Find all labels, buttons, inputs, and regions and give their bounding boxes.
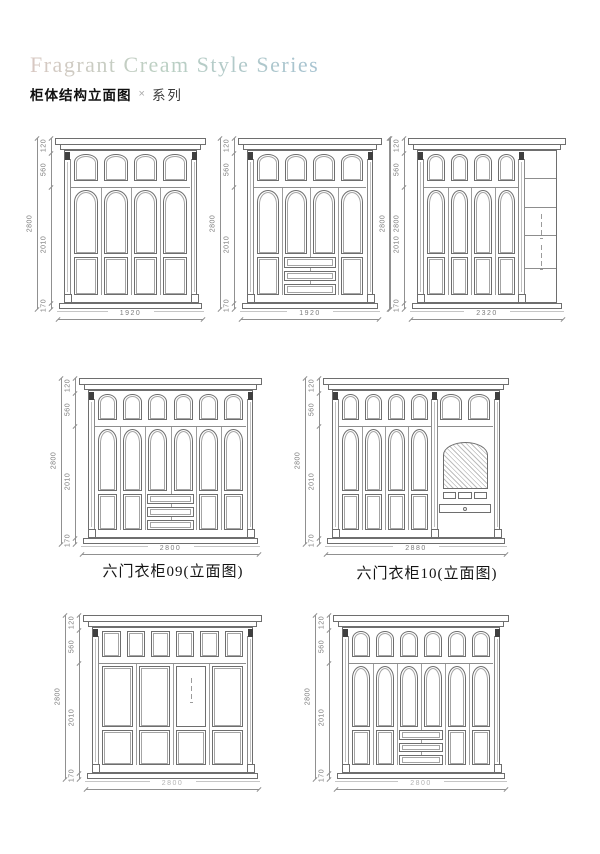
- door-panel-inner: [214, 732, 241, 764]
- caption-wardrobe-10: 六门衣柜10(立面图): [312, 562, 542, 583]
- door-panel-inner: [100, 496, 115, 529]
- door-panel-inner: [450, 633, 464, 656]
- dim-label: 2010: [318, 703, 327, 733]
- dim-label: 170: [68, 761, 77, 791]
- door-gap-line: [373, 664, 374, 765]
- pilaster-edge: [367, 159, 368, 295]
- tiny-annotation: [540, 238, 543, 239]
- pilaster-capital: [432, 392, 437, 400]
- mirror-base-panel: [474, 492, 488, 499]
- pilaster-foot: [367, 294, 375, 303]
- shelf-line: [524, 235, 556, 236]
- door-panel-inner: [176, 431, 191, 490]
- pilaster-foot: [332, 529, 340, 538]
- dim-tick: [504, 552, 509, 557]
- door-panel-inner: [106, 192, 126, 253]
- pilaster-edge: [423, 159, 424, 295]
- door-gap-line: [173, 664, 174, 765]
- door-panel-inner: [453, 192, 467, 253]
- pilaster-flute: [194, 162, 195, 292]
- door-panel-inner: [165, 192, 185, 253]
- pilaster-edge: [494, 636, 495, 765]
- door-panel-inner: [287, 192, 305, 253]
- pilaster-capital: [89, 392, 94, 400]
- dim-line-width: [86, 789, 259, 790]
- door-panel-inner: [178, 633, 193, 656]
- dim-label: 2010: [223, 230, 232, 260]
- pilaster-foot: [247, 294, 255, 303]
- pilaster-foot: [64, 294, 72, 303]
- pilaster-flute: [67, 162, 68, 292]
- drawer-front-inner: [287, 286, 333, 293]
- elevation-6door-wardrobe-10: 120560201017028002880: [296, 376, 540, 580]
- dim-label-width: 1920: [108, 310, 154, 318]
- door-panel-inner: [136, 259, 156, 294]
- dim-label: 170: [393, 291, 402, 321]
- door-panel-inner: [476, 156, 490, 180]
- door-panel-inner: [413, 496, 426, 529]
- door-panel-inner: [76, 259, 96, 294]
- dim-label: 170: [223, 291, 232, 321]
- door-panel-inner: [176, 396, 191, 419]
- door-gap-line: [397, 664, 398, 765]
- pilaster-foot: [494, 529, 502, 538]
- door-panel-inner: [125, 396, 140, 419]
- page-title: Fragrant Cream Style Series: [30, 52, 319, 78]
- door-gap-line: [282, 188, 283, 295]
- door-panel-inner: [500, 192, 514, 253]
- door-panel-inner: [202, 633, 217, 656]
- door-panel-inner: [100, 396, 115, 419]
- dim-line: [404, 138, 405, 309]
- pilaster-flute: [434, 402, 435, 527]
- door-gap-line: [338, 188, 339, 295]
- door-panel-inner: [125, 496, 140, 529]
- dim-line-total: [61, 378, 62, 544]
- pilaster-capital: [495, 392, 500, 400]
- dim-line-width: [58, 319, 203, 320]
- pilaster-capital: [248, 392, 253, 400]
- dim-line: [75, 378, 76, 544]
- pilaster-flute: [521, 162, 522, 292]
- pilaster-foot: [431, 529, 439, 538]
- door-panel-inner: [390, 431, 403, 490]
- drawer-knob: [463, 507, 467, 511]
- door-panel-inner: [453, 259, 467, 294]
- door-panel-inner: [259, 259, 277, 294]
- pilaster-edge: [98, 636, 99, 765]
- door-panel-inner: [106, 156, 126, 180]
- pilaster-flute: [250, 402, 251, 527]
- base-plinth: [327, 538, 505, 544]
- pilaster-flute: [345, 639, 346, 762]
- pilaster-capital: [333, 392, 338, 400]
- dim-label: 2800: [26, 208, 35, 238]
- door-panel-inner: [227, 633, 242, 656]
- caption-wardrobe-09: 六门衣柜09(立面图): [58, 560, 288, 581]
- door-panel-inner: [165, 259, 185, 294]
- drawer-front-inner: [402, 757, 440, 763]
- dim-line-total: [37, 138, 38, 309]
- door-panel-inner: [474, 732, 488, 764]
- door-panel-inner: [402, 633, 416, 656]
- dim-tick: [49, 307, 54, 312]
- mirror-base-panel: [443, 492, 457, 499]
- top-divider-line: [437, 426, 493, 427]
- pilaster-edge: [494, 399, 495, 530]
- tiny-annotation: [191, 686, 192, 691]
- dim-label-width: 2320: [464, 310, 510, 318]
- door-panel-inner: [104, 668, 131, 726]
- door-panel-inner: [226, 496, 241, 529]
- tiny-annotation: [540, 269, 543, 270]
- dim-label: 170: [64, 526, 73, 556]
- mirror-base-panel: [458, 492, 472, 499]
- dim-line-total: [220, 138, 221, 309]
- dim-label: 560: [68, 631, 77, 661]
- dim-label: 560: [318, 631, 327, 661]
- door-gap-line: [221, 427, 222, 530]
- door-panel-inner: [367, 431, 380, 490]
- dim-line: [234, 138, 235, 309]
- door-gap-line: [469, 664, 470, 765]
- tiny-annotation: [541, 261, 542, 266]
- door-panel-inner: [141, 732, 168, 764]
- door-panel-inner: [450, 668, 464, 726]
- door-panel-inner: [178, 732, 205, 764]
- door-panel-inner: [315, 156, 333, 180]
- door-panel-inner: [429, 156, 443, 180]
- base-plinth: [87, 773, 258, 779]
- pilaster-edge: [338, 399, 339, 530]
- dim-label: 2800: [379, 208, 388, 238]
- dim-label-width: 2880: [393, 545, 439, 553]
- dim-label-width: 2800: [398, 780, 444, 788]
- pilaster-flute: [91, 402, 92, 527]
- shelf-line: [524, 207, 556, 208]
- door-gap-line: [145, 427, 146, 530]
- door-panel-inner: [259, 192, 277, 253]
- pilaster-flute: [335, 402, 336, 527]
- subtitle-main: 柜体结构立面图: [30, 84, 132, 104]
- tiny-annotation: [191, 678, 192, 683]
- dim-line-total: [65, 615, 66, 779]
- mirror: [443, 442, 488, 489]
- door-panel-inner: [106, 259, 126, 294]
- pilaster-capital: [519, 152, 524, 160]
- dim-line-width: [411, 319, 563, 320]
- drawer-front-inner: [287, 259, 333, 266]
- multiply-separator: ×: [139, 88, 145, 100]
- drawer-front-inner: [402, 732, 440, 738]
- door-panel-inner: [453, 156, 467, 180]
- dim-label: 560: [393, 155, 402, 185]
- door-panel-inner: [378, 668, 392, 726]
- door-panel-inner: [343, 192, 361, 253]
- door-gap-line: [445, 664, 446, 765]
- drawer-front-inner: [287, 273, 333, 280]
- pilaster-capital: [368, 152, 373, 160]
- elevation-4door-wardrobe-a: 120560201017028001920: [28, 136, 237, 345]
- door-gap-line: [196, 427, 197, 530]
- dim-tick: [327, 777, 332, 782]
- door-gap-line: [131, 188, 132, 295]
- dim-tick: [561, 317, 566, 322]
- pilaster-flute: [250, 162, 251, 292]
- door-panel-inner: [474, 633, 488, 656]
- door-panel-inner: [226, 431, 241, 490]
- pilaster-capital: [248, 629, 253, 637]
- dim-label-width: 2800: [150, 780, 196, 788]
- dim-line-width: [241, 319, 379, 320]
- door-panel-inner: [474, 668, 488, 726]
- dim-tick: [77, 777, 82, 782]
- dim-tick: [317, 542, 322, 547]
- pilaster-edge: [524, 159, 525, 295]
- door-panel-inner: [136, 156, 156, 180]
- pilaster-capital: [495, 629, 500, 637]
- door-panel-inner: [141, 668, 168, 726]
- tiny-annotation: [541, 253, 542, 258]
- pilaster-foot: [518, 294, 526, 303]
- pilaster-foot: [247, 529, 255, 538]
- door-panel-inner: [344, 396, 357, 419]
- pilaster-flute: [497, 639, 498, 762]
- door-gap-line: [385, 427, 386, 530]
- door-gap-line: [209, 664, 210, 765]
- dim-label: 2800: [209, 208, 218, 238]
- pilaster-foot: [92, 764, 100, 773]
- door-gap-line: [136, 664, 137, 765]
- elevation-6door-wardrobe-drawers: 120560201017028002800: [306, 613, 540, 815]
- dim-label: 170: [318, 761, 327, 791]
- door-panel-inner: [367, 396, 380, 419]
- door-panel-inner: [259, 156, 277, 180]
- door-panel-inner: [201, 396, 216, 419]
- pilaster-foot: [191, 294, 199, 303]
- door-panel-inner: [226, 396, 241, 419]
- pilaster-edge: [191, 159, 192, 295]
- dim-line-total: [315, 615, 316, 779]
- base-plinth: [337, 773, 505, 779]
- dim-label: 170: [308, 526, 317, 556]
- door-panel-inner: [378, 732, 392, 764]
- door-panel-inner: [429, 192, 443, 253]
- pilaster-flute: [95, 639, 96, 762]
- dim-tick: [257, 787, 262, 792]
- door-panel-inner: [76, 192, 96, 253]
- base-plinth: [59, 303, 202, 309]
- door-gap-line: [495, 188, 496, 295]
- pilaster-edge: [253, 159, 254, 295]
- door-panel-inner: [201, 431, 216, 490]
- door-panel-inner: [104, 732, 131, 764]
- elevation-6door-wardrobe-flat: 120560201017028002800: [56, 613, 293, 815]
- pilaster-flute: [497, 402, 498, 527]
- door-panel-inner: [426, 668, 440, 726]
- base-plinth: [412, 303, 562, 309]
- door-panel-inner: [450, 732, 464, 764]
- pilaster-edge: [94, 399, 95, 530]
- door-panel-inner: [76, 156, 96, 180]
- drawer-front-inner: [402, 745, 440, 751]
- pilaster-capital: [248, 152, 253, 160]
- pilaster-foot: [247, 764, 255, 773]
- drawer-front-inner: [150, 522, 190, 528]
- dim-tick: [402, 307, 407, 312]
- door-panel-inner: [402, 668, 416, 726]
- pilaster-edge: [348, 636, 349, 765]
- pilaster-capital: [65, 152, 70, 160]
- dim-label: 2800: [50, 446, 59, 476]
- pilaster-capital: [93, 629, 98, 637]
- base-plinth: [242, 303, 378, 309]
- dim-label: 2010: [393, 230, 402, 260]
- door-panel-inner: [476, 259, 490, 294]
- dim-label: 2010: [308, 467, 317, 497]
- tiny-annotation: [541, 245, 542, 250]
- dim-label-width: 1920: [287, 310, 333, 318]
- door-panel-inner: [378, 633, 392, 656]
- door-panel-inner: [343, 259, 361, 294]
- dim-label: 560: [64, 394, 73, 424]
- door-panel-inner: [442, 396, 460, 419]
- dim-label: 2800: [294, 446, 303, 476]
- door-panel-inner: [344, 496, 357, 529]
- dim-line-width: [336, 789, 506, 790]
- dim-label: 2800: [54, 682, 63, 712]
- dim-line: [319, 378, 320, 544]
- subtitle-series: 系列: [152, 84, 183, 104]
- door-panel-inner: [104, 633, 119, 656]
- door-panel-inner: [150, 431, 165, 490]
- door-gap-line: [160, 188, 161, 295]
- door-gap-line: [101, 188, 102, 295]
- dim-line-width: [82, 554, 259, 555]
- dim-label: 2010: [68, 703, 77, 733]
- door-panel-inner: [470, 396, 488, 419]
- tiny-annotation: [541, 230, 542, 235]
- base-plinth: [83, 538, 258, 544]
- door-panel-inner: [500, 259, 514, 294]
- door-panel-inner: [136, 192, 156, 253]
- door-panel-inner: [100, 431, 115, 490]
- tiny-annotation: [541, 222, 542, 227]
- dim-tick: [257, 552, 262, 557]
- catalog-page: Fragrant Cream Style Series 柜体结构立面图 × 系列…: [0, 0, 600, 854]
- pilaster-edge: [70, 159, 71, 295]
- door-panel-inner: [390, 496, 403, 529]
- drawer-front-inner: [150, 496, 190, 502]
- dim-label: 560: [40, 155, 49, 185]
- dim-label: 2010: [64, 467, 73, 497]
- door-panel-inner: [150, 396, 165, 419]
- tiny-annotation: [190, 702, 193, 703]
- dim-label-width: 2800: [148, 545, 194, 553]
- pilaster-flute: [420, 162, 421, 292]
- pilaster-edge: [437, 399, 438, 530]
- door-panel-inner: [354, 633, 368, 656]
- dim-line: [329, 615, 330, 779]
- pilaster-capital: [418, 152, 423, 160]
- pilaster-flute: [370, 162, 371, 292]
- pilaster-foot: [342, 764, 350, 773]
- dim-line: [51, 138, 52, 309]
- dim-tick: [73, 542, 78, 547]
- door-gap-line: [471, 188, 472, 295]
- door-panel-inner: [500, 156, 514, 180]
- door-panel-inner: [315, 192, 333, 253]
- dim-line-total: [305, 378, 306, 544]
- door-gap-line: [362, 427, 363, 530]
- tiny-annotation: [541, 214, 542, 219]
- door-panel-inner: [201, 496, 216, 529]
- dim-label: 560: [223, 155, 232, 185]
- door-panel-inner: [367, 496, 380, 529]
- door-panel-inner: [125, 431, 140, 490]
- dim-label: 560: [308, 394, 317, 424]
- dim-tick: [504, 787, 509, 792]
- door-panel-inner: [390, 396, 403, 419]
- pilaster-capital: [192, 152, 197, 160]
- door-panel-inner: [426, 633, 440, 656]
- door-gap-line: [448, 188, 449, 295]
- elevation-4door-wardrobe-shelves: 120560201017028002320: [381, 136, 597, 345]
- door-panel-inner: [476, 192, 490, 253]
- dim-line: [79, 615, 80, 779]
- pilaster-foot: [417, 294, 425, 303]
- door-panel-inner: [165, 156, 185, 180]
- door-panel-inner: [287, 156, 305, 180]
- door-panel-inner: [153, 633, 168, 656]
- elevation-6door-wardrobe-09: 120560201017028002800: [52, 376, 293, 580]
- door-panel-inner: [429, 259, 443, 294]
- pilaster-edge: [431, 399, 432, 530]
- tiny-annotation: [191, 694, 192, 699]
- pilaster-edge: [518, 159, 519, 295]
- pilaster-capital: [343, 629, 348, 637]
- pilaster-flute: [250, 639, 251, 762]
- door-panel-inner: [354, 732, 368, 764]
- pilaster-foot: [88, 529, 96, 538]
- dim-line-width: [326, 554, 506, 555]
- pilaster-edge: [247, 399, 248, 530]
- page-subtitle: 柜体结构立面图 × 系列: [30, 84, 183, 104]
- shelf-line: [524, 178, 556, 179]
- dim-label: 2800: [304, 682, 313, 712]
- dim-tick: [201, 317, 206, 322]
- door-gap-line: [408, 427, 409, 530]
- door-panel-inner: [354, 668, 368, 726]
- pilaster-edge: [247, 636, 248, 765]
- dim-label: 170: [40, 291, 49, 321]
- dim-tick: [232, 307, 237, 312]
- pilaster-foot: [494, 764, 502, 773]
- drawer-front-inner: [150, 509, 190, 515]
- door-panel-inner: [129, 633, 144, 656]
- door-panel-inner: [413, 431, 426, 490]
- dim-line-total: [390, 138, 391, 309]
- door-panel-inner: [413, 396, 426, 419]
- dim-label: 2010: [40, 230, 49, 260]
- door-panel-inner: [343, 156, 361, 180]
- door-panel-inner: [344, 431, 357, 490]
- door-gap-line: [120, 427, 121, 530]
- door-panel-inner: [214, 668, 241, 726]
